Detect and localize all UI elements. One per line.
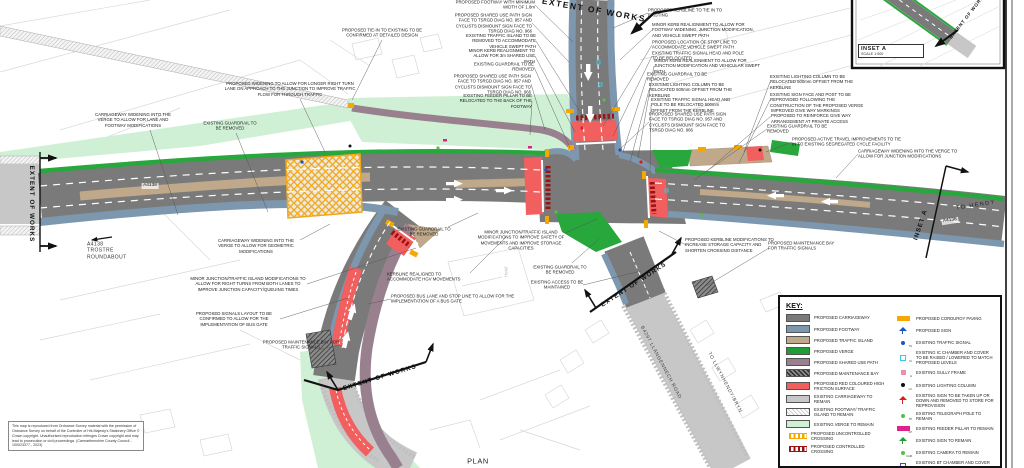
inset-a-title-box: INSET A SCALE 1:500 [858,44,924,58]
ann-feeder-pillar: EXISTING FEEDER PILLAR TO BE RELOCATED T… [456,93,532,109]
key-item: PROPOSED MAINTENANCE BAY [786,369,886,377]
key-item-label: EXISTING LIGHTING COLUMN [916,383,994,388]
key-item: PROPOSED CARRIAGEWAY [786,314,886,322]
key-swatch [786,369,810,377]
key-swatch [786,336,810,344]
key-symbol: TP [894,411,912,420]
key-item: CAMEXISTING CAMERA TO REMAIN [894,448,994,457]
key-item-label: EXISTING SIGN TO REMAIN [916,438,994,443]
key-item-label: PROPOSED FOOTWAY [814,327,886,332]
key-item-label: PROPOSED UNCONTROLLED CROSSING [811,431,886,441]
key-item-label: EXISTING FOOTWAY/ TRAFFIC ISLAND TO REMA… [814,407,886,417]
key-swatch [786,358,810,366]
key-item-label: EXISTING FEEDER PILLAR TO REMAIN [916,426,994,431]
key-item: GEXISTING GULLY FRAME [894,368,994,377]
key-item: FPEXISTING FEEDER PILLAR TO REMAIN [894,424,994,433]
key-item-label: PROPOSED RED COLOURED HIGH FRICTION SURF… [814,381,886,391]
road-label-trostre: A4138 TROSTRE ROUNDABOUT [87,242,145,261]
ann-lighting-column-ne: EXISTING LIGHTING COLUMN TO BE RELOCATED… [649,82,735,98]
key-swatch [789,446,807,452]
ann-guardrail-nw: EXISTING GUARDRAIL TO BE REMOVED [470,62,534,73]
ann-right-turn-widening: PROPOSED WIDENING TO ALLOW FOR LONGER RI… [224,81,356,97]
ann-kerbline-hgv: KERBLINE REALIGNED TO ACCOMMODATE HGV MO… [387,272,469,283]
ann-lighting-column-e: EXISTING LIGHTING COLUMN TO BE RELOCATED… [770,74,854,90]
extent-of-works-se: EXTENT OF WORKS [600,261,669,309]
road-label-b4297: B4297 LLANGENNECH ROAD [638,325,682,400]
extent-of-works-sw: EXTENT OF WORKS [342,363,418,393]
key-swatch [786,347,810,355]
ann-maintenance-bay-se: PROPOSED MAINTENANCE BAY FOR TRAFFIC SIG… [768,241,844,252]
key-symbol [894,314,912,323]
extent-of-works-inset: EXTENT OF WORKS [948,0,987,40]
key-item: ICEXISTING IC CHAMBER AND COVER TO BE RA… [894,350,994,365]
key-item-label: EXISTING VERGE TO REMAIN [814,422,886,427]
key-column-right: PROPOSED CORDUROY PAVINGPROPOSED SIGNTSE… [894,314,994,468]
ann-access-maintained: EXISTING ACCESS TO BE MAINTAINED [527,280,587,291]
key-item: BTEXISTING BT CHAMBER AND COVER TO REMAI… [894,460,994,468]
key-item-label: EXISTING BT CHAMBER AND COVER TO REMAIN [916,460,994,468]
key-symbol [894,326,912,335]
inset-a-scale: SCALE 1:500 [861,52,921,56]
key-item: PROPOSED CORDUROY PAVING [894,314,994,323]
key-item: PROPOSED RED COLOURED HIGH FRICTION SURF… [786,381,886,391]
key-item-label: PROPOSED CONTROLLED CROSSING [811,444,886,454]
ann-guardrail-se: EXISTING GUARDRAIL TO BE REMOVED [530,265,590,276]
ann-maintenance-bay-sw: PROPOSED MAINTENANCE BAY FOR TRAFFIC SIG… [262,340,340,351]
key-swatch [786,408,810,416]
ann-shared-use-sign-w: PROPOSED SHARED USE PATH SIGN FACE TO TS… [447,73,531,94]
key-symbol: BT [894,461,912,468]
key-item-label: EXISTING CAMERA TO REMAIN [916,450,994,455]
inset-a-boundary-label: INSET A [912,209,929,242]
key-symbol: TS [894,338,912,347]
key-item: EXISTING SIGN TO BE TAKEN UP OR DOWN AND… [894,393,994,408]
key-item-label: PROPOSED CORDUROY PAVING [916,316,994,321]
ann-guardrail-ne: EXISTING GUARDRAIL TO BE REMOVED [647,72,711,83]
key-swatch [786,395,810,403]
key-item: EXISTING SIGN TO REMAIN [894,436,994,445]
key-item-label: PROPOSED CARRIAGEWAY [814,315,886,320]
key-symbol: IC [894,353,912,362]
ann-tie-in-detailed: PROPOSED TIE-IN TO EXISTING TO BE CONFIR… [331,28,433,39]
key-item-label: EXISTING GULLY FRAME [916,370,994,375]
key-symbol [894,436,912,445]
extent-of-works-top: EXTENT OF WORKS [541,0,647,24]
key-symbol: G [894,368,912,377]
key-item-label: PROPOSED TRAFFIC ISLAND [814,338,886,343]
ann-shared-use-sign-ne: PROPOSED SHARED USE PATH SIGN FACE TO TS… [649,111,733,132]
key-item-label: PROPOSED SHARED USE PATH [814,360,886,365]
key-item-label: EXISTING TRAFFIC SIGNAL [916,340,994,345]
key-item: PROPOSED VERGE [786,347,886,355]
ann-kerbline-tie-in: PROPOSED KERBLINE TO TIE IN TO EXISTING [648,8,724,19]
junction-improvement-plan: PROPOSED FOOTWAY WITH MINIMUM WIDTH OF 1… [0,0,1024,468]
key-swatch [786,382,810,390]
ann-guardrail-sw: EXISTING GUARDRAIL TO BE REMOVED [394,227,454,238]
road-label-a4138-west: A4138 [142,183,159,189]
ann-junction-mod-right-turns: MINOR JUNCTION/TRAFFIC ISLAND MODIFICATI… [189,276,307,292]
ann-cw-widening-geometric: CARRIAGEWAY WIDENING INTO THE VERGE TO A… [212,238,300,254]
road-label-to-hendy: TO HENDY [956,199,997,212]
key-item: EXISTING VERGE TO REMAIN [786,420,886,428]
ann-footway-width: PROPOSED FOOTWAY WITH MINIMUM WIDTH OF 1… [455,0,535,10]
ann-cw-widening-lane: CARRIAGEWAY WIDENING INTO THE VERGE TO A… [89,112,177,128]
key-item: EXISTING FOOTWAY/ TRAFFIC ISLAND TO REMA… [786,407,886,417]
key-item: TPEXISTING TELEGRAPH POLE TO REMAIN [894,411,994,421]
ann-kerbline-storage: PROPOSED KERBLINE MODIFICATIONS TO INCRE… [685,237,777,253]
key-symbol: CAM [894,448,912,457]
ann-give-way: IMPROVED GIVE WAY MARKINGS PROPOSED TO R… [771,108,861,124]
road-label-llwynhendy: TO LLWYNHENDY/BRYN [705,352,742,415]
key-symbol: FP [894,424,912,433]
ann-guardrail-w: EXISTING GUARDRAIL TO BE REMOVED [200,121,260,132]
key-item: PROPOSED UNCONTROLLED CROSSING [786,431,886,441]
key-column-left: PROPOSED CARRIAGEWAYPROPOSED FOOTWAYPROP… [786,314,886,468]
key-item-label: EXISTING IC CHAMBER AND COVER TO BE RAIS… [916,350,994,365]
key-item: PROPOSED SHARED USE PATH [786,358,886,366]
key-item: PROPOSED TRAFFIC ISLAND [786,336,886,344]
ann-kerb-footway-widening: MINOR KERB REALIGNMENT TO ALLOW FOR FOOT… [652,22,756,38]
key-item: LCEXISTING LIGHTING COLUMN [894,381,994,390]
ann-guardrail-e: EXISTING GUARDRAIL TO BE REMOVED [767,124,831,135]
map-label-hotel: Hotel [503,267,509,277]
key-item-label: PROPOSED SIGN [916,328,994,333]
ann-sign-reprovided: EXISTING SIGN FACE AND POST TO BE REPROV… [770,92,864,108]
ann-active-travel: PROPOSED ACTIVE TRAVEL IMPROVEMENTS TO T… [792,137,904,148]
key-item: EXISTING CARRIAGEWAY TO REMAIN [786,394,886,404]
key-item-label: PROPOSED VERGE [814,349,886,354]
ann-traffic-island-removed: EXISTING TRAFFIC ISLAND TO BE REMOVED TO… [458,33,536,49]
ann-shared-use-sign-nw: PROPOSED SHARED USE PATH SIGN FACE TO TS… [448,12,532,33]
key-swatch [789,433,807,439]
key-item-label: PROPOSED MAINTENANCE BAY [814,371,886,376]
key-item: PROPOSED CONTROLLED CROSSING [786,444,886,454]
ann-junction-mod-safety: MINOR JUNCTION/TRAFFIC ISLAND MODIFICATI… [469,229,573,250]
road-label-a4138-east: A4138 [941,217,959,226]
key-item-label: EXISTING TELEGRAPH POLE TO REMAIN [916,411,994,421]
plan-title: PLAN [467,456,489,465]
key-symbol: LC [894,381,912,390]
key-item: TSEXISTING TRAFFIC SIGNAL [894,338,994,347]
ann-bus-lane: PROPOSED BUS LANE AND STOP LINE TO ALLOW… [391,294,519,305]
key-legend: KEY: PROPOSED CARRIAGEWAYPROPOSED FOOTWA… [778,295,1002,468]
key-title: KEY: [786,301,994,310]
key-item-label: EXISTING CARRIAGEWAY TO REMAIN [814,394,886,404]
key-symbol [894,396,912,405]
key-swatch [786,420,810,428]
key-item: PROPOSED SIGN [894,326,994,335]
key-item: PROPOSED FOOTWAY [786,325,886,333]
key-swatch [786,325,810,333]
ann-stop-line: PROPOSED LOCATION OF STOP LINE TO ACCOMM… [652,40,748,51]
key-swatch [786,314,810,322]
copyright-note: This map is reproduced from Ordnance Sur… [8,421,144,451]
extent-of-works-west: EXTENT OF WORKS [27,166,35,243]
ann-cw-widening-junction: CARRIAGEWAY WIDENING INTO THE VERGE TO A… [858,149,966,160]
key-item-label: EXISTING SIGN TO BE TAKEN UP OR DOWN AND… [916,393,994,408]
ann-signals-layout: PROPOSED SIGNALS LAYOUT TO BE CONFIRMED … [188,311,280,327]
